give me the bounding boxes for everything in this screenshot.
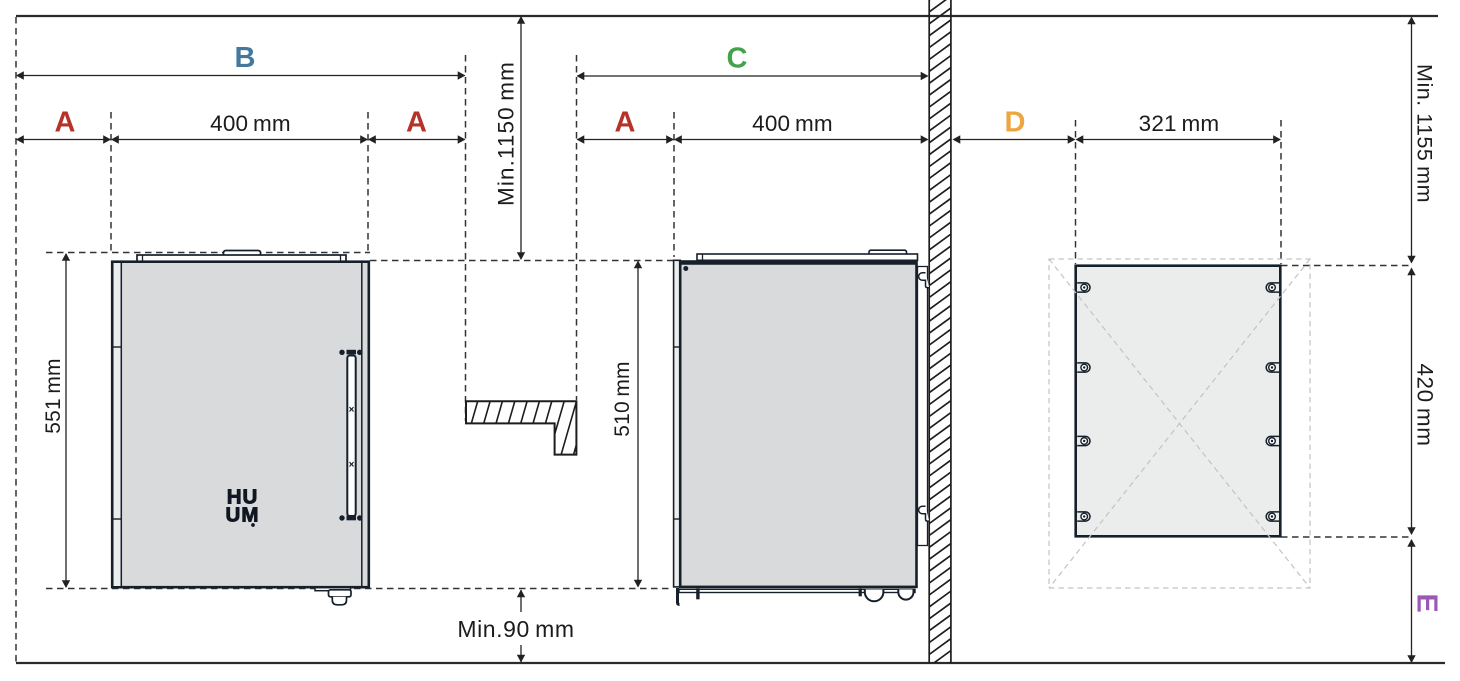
svg-text:Min.90 mm: Min.90 mm xyxy=(457,616,574,642)
svg-text:321 mm: 321 mm xyxy=(1139,111,1220,136)
svg-text:C: C xyxy=(727,43,748,75)
svg-text:Min.1150 mm: Min.1150 mm xyxy=(494,61,519,206)
svg-text:Min. 1155 mm: Min. 1155 mm xyxy=(1413,64,1437,203)
svg-text:420 mm: 420 mm xyxy=(1413,363,1438,446)
svg-text:400 mm: 400 mm xyxy=(210,111,291,136)
svg-text:A: A xyxy=(615,107,636,139)
svg-text:E: E xyxy=(1411,593,1443,612)
svg-text:UM: UM xyxy=(226,504,260,527)
svg-text:D: D xyxy=(1005,107,1026,139)
svg-text:A: A xyxy=(55,107,76,139)
svg-text:510 mm: 510 mm xyxy=(611,361,634,436)
svg-text:A: A xyxy=(406,107,427,139)
svg-text:B: B xyxy=(235,42,256,74)
svg-text:400 mm: 400 mm xyxy=(752,111,833,136)
svg-text:551 mm: 551 mm xyxy=(42,358,65,433)
